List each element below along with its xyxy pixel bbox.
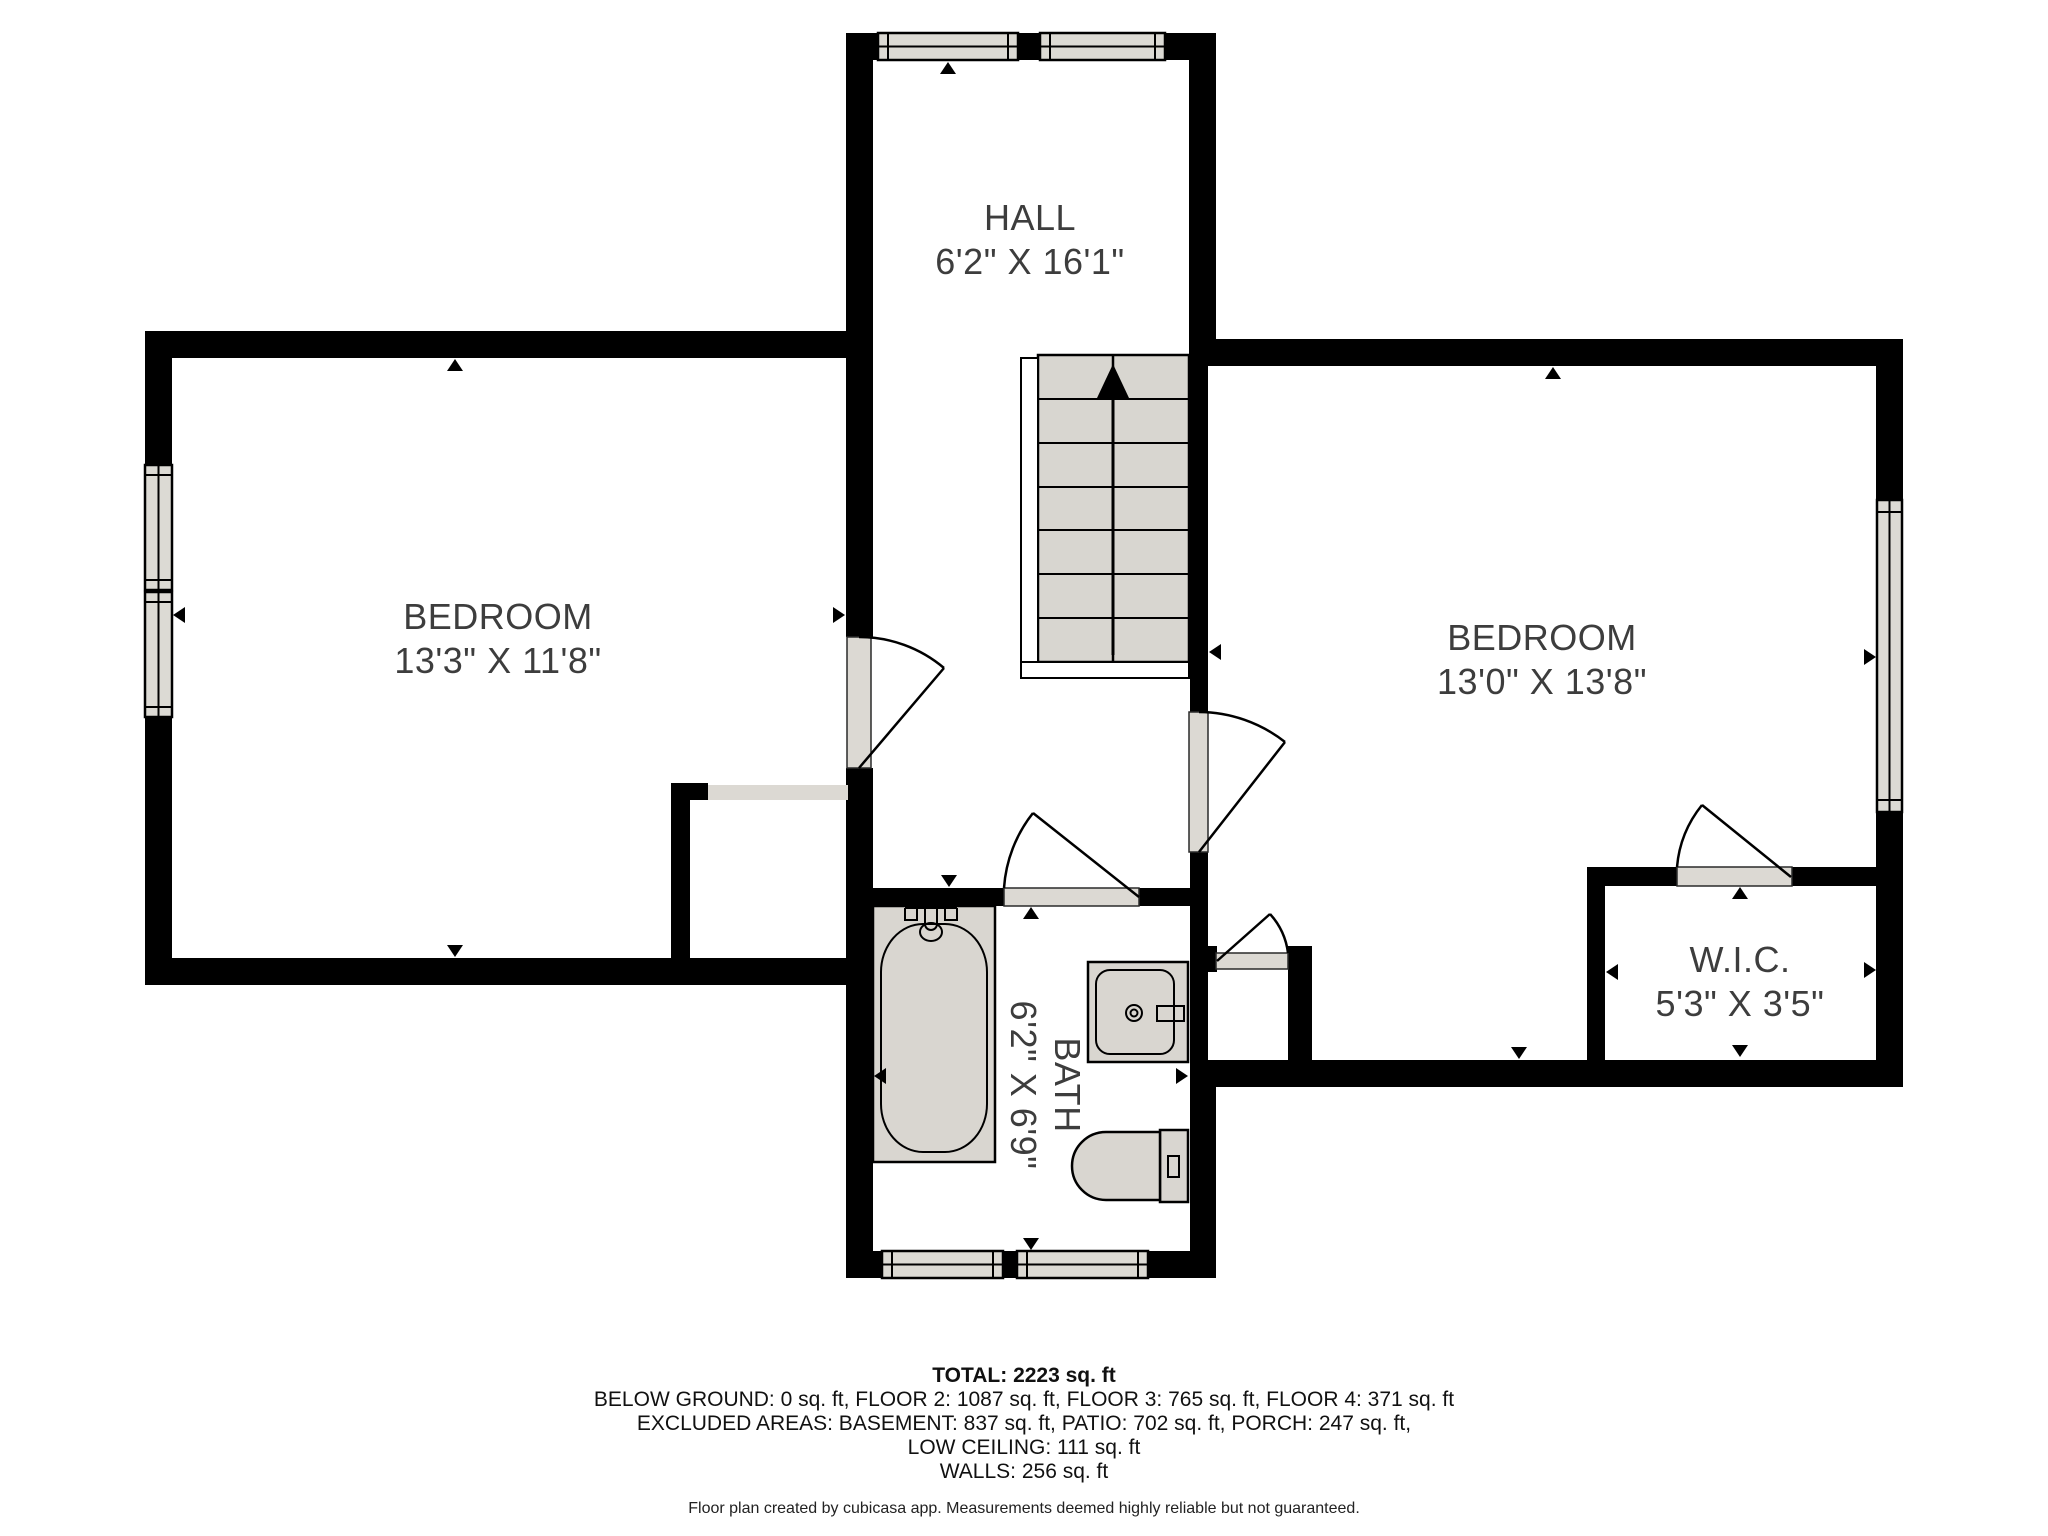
door-closet	[1216, 953, 1288, 969]
room-label-wic: W.I.C. 5'3" X 3'5"	[1656, 938, 1825, 1026]
low-ceiling-line: LOW CEILING: 111 sq. ft	[0, 1436, 2048, 1460]
room-name: HALL	[935, 196, 1124, 240]
room-dims: 5'3" X 3'5"	[1656, 982, 1825, 1026]
room-dims: 13'3" X 11'8"	[394, 639, 601, 683]
stair-railing	[1021, 358, 1038, 678]
disclaimer-text: Floor plan created by cubicasa app. Meas…	[0, 1500, 2048, 1518]
room-label-bath: BATH 6'2" X 6'9"	[1001, 1001, 1089, 1170]
excluded-areas-line: EXCLUDED AREAS: BASEMENT: 837 sq. ft, PA…	[0, 1412, 2048, 1436]
room-name: W.I.C.	[1656, 938, 1825, 982]
toilet-icon	[1072, 1130, 1188, 1202]
room-label-bedroom-right: BEDROOM 13'0" X 13'8"	[1437, 616, 1647, 704]
room-name: BEDROOM	[394, 595, 601, 639]
room-label-hall: HALL 6'2" X 16'1"	[935, 196, 1124, 284]
door-right-bedroom	[1189, 712, 1208, 852]
total-area: TOTAL: 2223 sq. ft	[0, 1364, 2048, 1388]
door-wic	[1677, 867, 1792, 886]
room-name: BEDROOM	[1437, 616, 1647, 660]
room-dims: 13'0" X 13'8"	[1437, 660, 1647, 704]
bathtub-icon	[873, 906, 995, 1162]
room-dims: 6'2" X 6'9"	[1001, 1001, 1045, 1170]
room-name: BATH	[1045, 1001, 1089, 1170]
room-label-bedroom-left: BEDROOM 13'3" X 11'8"	[394, 595, 601, 683]
staircase	[1021, 355, 1189, 678]
sink-icon	[1088, 962, 1188, 1062]
room-dims: 6'2" X 16'1"	[935, 240, 1124, 284]
floor-plan-page: HALL 6'2" X 16'1" BEDROOM 13'3" X 11'8" …	[0, 0, 2048, 1536]
walls-area-line: WALLS: 256 sq. ft	[0, 1460, 2048, 1484]
opening-alcove	[708, 785, 848, 800]
floor-areas-line: BELOW GROUND: 0 sq. ft, FLOOR 2: 1087 sq…	[0, 1388, 2048, 1412]
door-bath	[1004, 888, 1139, 906]
door-left-bedroom	[847, 637, 871, 768]
area-summary: TOTAL: 2223 sq. ft BELOW GROUND: 0 sq. f…	[0, 1364, 2048, 1484]
